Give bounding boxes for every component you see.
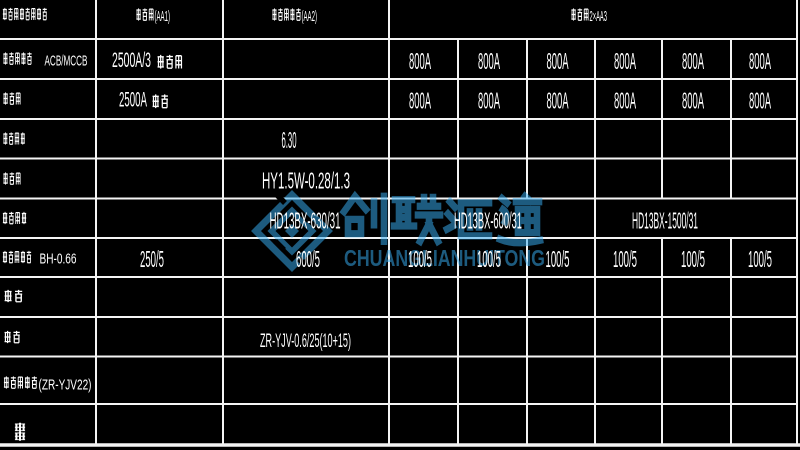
svg-text:600/5: 600/5 bbox=[296, 246, 320, 272]
svg-text:100/5: 100/5 bbox=[681, 246, 705, 272]
svg-text:800A: 800A bbox=[547, 88, 569, 114]
svg-text:HD13BX-1500/31: HD13BX-1500/31 bbox=[632, 208, 698, 234]
svg-text:(AA2): (AA2) bbox=[302, 9, 318, 25]
svg-text:2500A: 2500A bbox=[119, 89, 147, 112]
svg-text:100/5: 100/5 bbox=[546, 246, 570, 272]
svg-text:ZR-YJV-0.6/25(10+15): ZR-YJV-0.6/25(10+15) bbox=[260, 331, 351, 352]
svg-text:100/5: 100/5 bbox=[408, 246, 432, 272]
svg-text:ACB/MCCB: ACB/MCCB bbox=[45, 54, 88, 70]
svg-text:800A: 800A bbox=[682, 88, 704, 114]
svg-text:HY1.5W-0.28/1.3: HY1.5W-0.28/1.3 bbox=[262, 168, 350, 194]
svg-text:BH-0.66: BH-0.66 bbox=[40, 252, 77, 268]
svg-text:800A: 800A bbox=[749, 48, 771, 74]
svg-text:250/5: 250/5 bbox=[140, 246, 164, 272]
svg-text:HD13BX-600/31: HD13BX-600/31 bbox=[454, 208, 522, 234]
svg-text:800A: 800A bbox=[682, 48, 704, 74]
svg-text:(ZR-YJV22): (ZR-YJV22) bbox=[39, 377, 92, 394]
svg-text:800A: 800A bbox=[409, 48, 431, 74]
svg-text:100/5: 100/5 bbox=[748, 246, 772, 272]
svg-text:800A: 800A bbox=[614, 48, 636, 74]
svg-text:800A: 800A bbox=[478, 88, 500, 114]
svg-text:100/5: 100/5 bbox=[613, 246, 637, 272]
svg-text:100/5: 100/5 bbox=[477, 246, 501, 272]
svg-text:800A: 800A bbox=[409, 88, 431, 114]
svg-text:6.30: 6.30 bbox=[282, 127, 297, 153]
svg-text:(AA1): (AA1) bbox=[155, 9, 171, 25]
svg-text:2×AA3: 2×AA3 bbox=[590, 9, 608, 25]
svg-text:800A: 800A bbox=[614, 88, 636, 114]
svg-text:CHUANGLIANHUITONG: CHUANGLIANHUITONG bbox=[344, 245, 545, 271]
svg-text:800A: 800A bbox=[547, 48, 569, 74]
svg-text:2500A/3: 2500A/3 bbox=[112, 49, 151, 72]
svg-text:HD13BX-630/31: HD13BX-630/31 bbox=[270, 208, 341, 234]
svg-text:800A: 800A bbox=[749, 88, 771, 114]
svg-text:800A: 800A bbox=[478, 48, 500, 74]
